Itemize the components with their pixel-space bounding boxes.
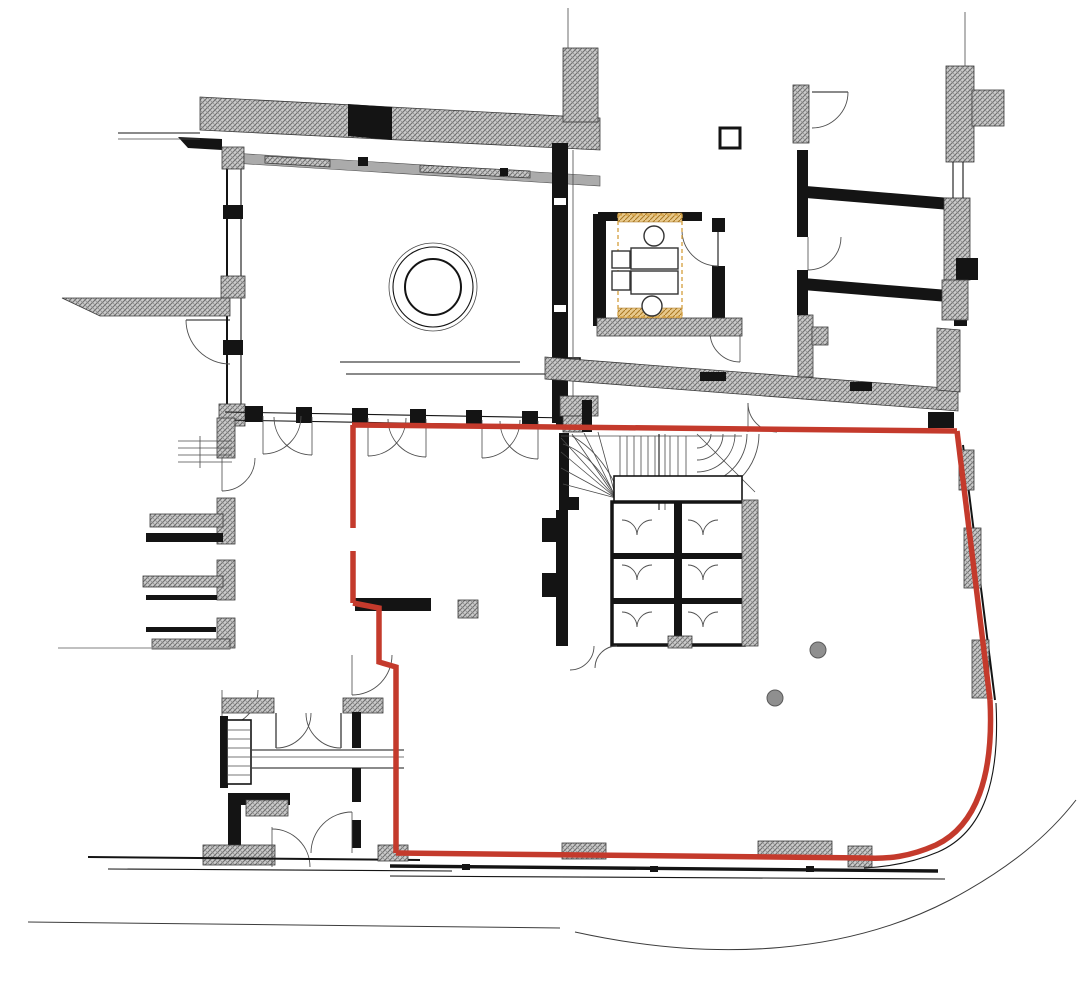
ext-wall-top-black-seg [348,104,392,140]
core-stub-2 [542,573,558,597]
closet-inner-hatch [246,800,288,816]
rightblock-vwall-low [937,328,960,392]
floor-plan-page [0,0,1085,1000]
column-dot-2 [767,690,783,706]
hall-left-pier-1 [222,147,244,169]
topright-right-protrusion [972,90,1004,126]
square-column [720,128,740,148]
topright-right-blackseg [956,258,978,280]
core-bottom-hatch [668,636,692,648]
elevator-divider-row-1 [612,553,744,559]
furniture-room-left-wall [593,214,606,326]
elevator-divider-row-2 [612,598,744,604]
core-right-wall [742,500,758,646]
topright-left-wall-low [797,270,808,315]
furniture-room-right-wall-a [712,218,725,232]
diagonal-band-tick-b [850,382,872,391]
sill-tick-2 [650,866,658,872]
vestibule-right-wall-a [352,712,361,748]
elevator-vertical-divider [674,502,682,645]
stair-bottom-black [565,497,579,510]
fin-5 [146,627,216,632]
hall-left-pier-3 [221,276,245,298]
corner-block [928,412,954,428]
stair-landing [614,476,742,502]
hall-bay-pier-1 [245,406,263,422]
furniture-room-bottom-wall [597,318,742,336]
fin-1 [150,514,223,527]
sill-tick-1 [462,864,470,870]
hall-bay-pier-2 [296,407,312,423]
vestibule-right-wall-c [352,820,361,848]
corridor-conn-stub [812,327,828,345]
vestibule-right-wall-b [352,768,361,802]
hall-right-wall [552,143,568,423]
diagonal-band-left-end [560,396,598,416]
sill-tick-3 [806,866,814,872]
closet-bottom-hatch [203,845,275,865]
floor-plan-drawing [0,0,1085,1000]
hall-right-wall-slit-1 [554,198,566,205]
column-dot-1 [810,642,826,658]
topright-right-wall-a [946,66,974,162]
topright-right-wall-c [942,280,968,320]
stub-wall-top-center [563,48,598,122]
fin-3 [143,576,223,587]
fin-2 [146,533,223,542]
desk-2 [631,271,678,294]
hall-left-pier-4 [223,340,243,355]
hall-bay-pier-4 [410,409,426,425]
hall-left-pier-2 [223,205,243,219]
hall-top-tick-2 [500,168,508,176]
diagonal-band-tick-a [700,372,726,381]
desk-1 [631,248,678,269]
topright-left-wall-top [793,85,809,143]
hall-bay-pier-3 [352,408,368,424]
leftblock-wall-upper [217,418,235,458]
chair-bottom [642,296,662,316]
hall-top-tick-1 [358,157,368,166]
vestibule-topwall-right [343,698,383,713]
hall-right-wall-slit-2 [554,305,566,312]
side-table-1 [612,251,630,268]
fin-4 [146,595,217,600]
chair-top [644,226,664,246]
core-stub-1 [542,518,558,542]
vestibule-topwall-left [222,698,274,713]
interior-column-hatch [458,600,478,618]
corridor-conn-wall [798,315,813,377]
side-table-2 [612,271,630,290]
